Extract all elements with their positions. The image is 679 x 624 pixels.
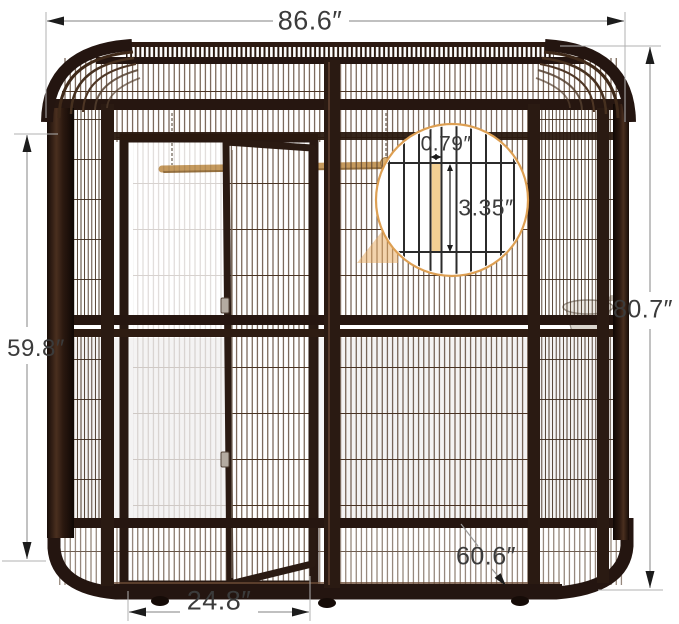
door-panel-open <box>221 142 312 584</box>
dim-mesh-gap-label: 0.79″ <box>421 134 472 155</box>
caster-foot <box>151 596 169 606</box>
arrow-left <box>47 17 64 26</box>
caster-foot <box>318 598 336 608</box>
aviary-cage-illustration <box>0 0 679 624</box>
dim-depth-label: 60.6″ <box>456 545 516 570</box>
arrow-up <box>646 47 655 64</box>
dim-top-width-label: 86.6″ <box>278 8 343 35</box>
dim-mesh-cell-height-label: 3.35″ <box>458 197 513 220</box>
dim-door-width-label: 24.8″ <box>187 588 252 615</box>
door-latch <box>221 298 229 313</box>
arrow-left <box>129 608 146 617</box>
roof-edge <box>126 46 554 58</box>
arrow-right <box>292 608 309 617</box>
highlighted-mesh-cell <box>432 164 441 251</box>
dim-right-height-label: 80.7″ <box>613 298 673 323</box>
caster-foot <box>511 596 529 606</box>
left-corner-post <box>47 108 74 538</box>
arrow-right <box>607 17 624 26</box>
arrow-down <box>646 571 655 588</box>
dim-left-height-label: 59.8″ <box>7 337 65 361</box>
arrow-down <box>23 542 32 559</box>
arrow-up <box>23 135 32 152</box>
center-post <box>324 60 340 588</box>
door-latch <box>221 452 229 467</box>
product-dimension-figure: 86.6″ 80.7″ 59.8″ 24.8″ 60.6″ 0.79″ 3.35… <box>0 0 679 624</box>
